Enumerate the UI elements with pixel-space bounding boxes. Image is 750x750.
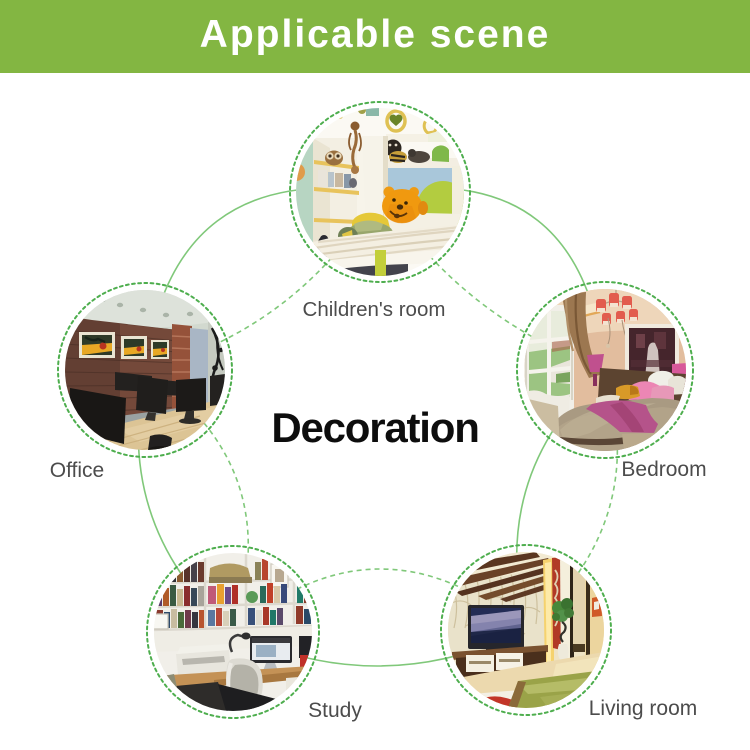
svg-text:Applicable scene: Applicable scene [200,13,551,56]
svg-text:Living room: Living room [589,697,698,720]
svg-text:Bedroom: Bedroom [621,458,706,481]
svg-text:Office: Office [50,459,104,482]
svg-text:Decoration: Decoration [271,404,478,451]
svg-text:Children's room: Children's room [303,298,446,321]
svg-text:Study: Study [308,699,362,722]
